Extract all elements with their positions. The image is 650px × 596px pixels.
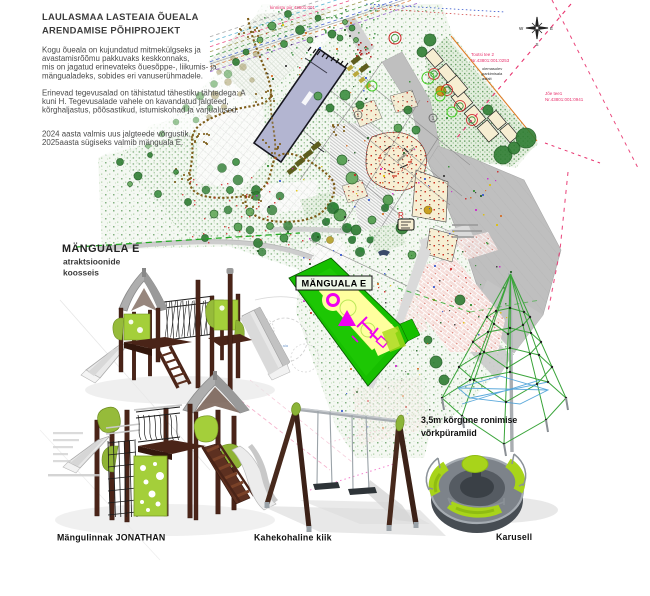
svg-text:MÄNGUALA E: MÄNGUALA E	[62, 242, 140, 255]
svg-text:kinnistu piir 43801:001: kinnistu piir 43801:001	[270, 5, 316, 10]
svg-text:E: E	[550, 26, 553, 31]
svg-text:Karusell: Karusell	[496, 532, 532, 542]
svg-text:3,5m kõrgune ronimise: 3,5m kõrgune ronimise	[421, 415, 517, 425]
svg-text:MÄNGUALA E: MÄNGUALA E	[302, 279, 367, 289]
svg-text:asfalt: asfalt	[482, 76, 492, 81]
svg-text:Nr.43801:001:0253: Nr.43801:001:0253	[471, 58, 510, 63]
svg-text:Nr.43801:001:0941: Nr.43801:001:0941	[545, 97, 584, 102]
svg-text:koosseis: koosseis	[63, 268, 99, 278]
svg-text:Mängulinnak JONATHAN: Mängulinnak JONATHAN	[57, 533, 165, 543]
svg-text:1: 1	[432, 116, 435, 122]
svg-text:Kahekohaline kiik: Kahekohaline kiik	[254, 533, 332, 543]
svg-text:mängualadeks, sobides eri vanu: mängualadeks, sobides eri vanuserühmadel…	[42, 71, 203, 80]
svg-text:ARENDAMISE PÕHIPROJEKT: ARENDAMISE PÕHIPROJEKT	[42, 25, 180, 36]
svg-text:S: S	[536, 42, 539, 47]
svg-text:2025aasta sügiseks valmib mäng: 2025aasta sügiseks valmib mänguala E.	[42, 138, 183, 147]
svg-text:atraktsioonide: atraktsioonide	[63, 257, 121, 267]
svg-text:Tootsi tee 2: Tootsi tee 2	[471, 52, 495, 57]
svg-text:Jõe tee1: Jõe tee1	[545, 91, 563, 96]
svg-text:LAULASMAA LASTEAIA ÕUEALA: LAULASMAA LASTEAIA ÕUEALA	[42, 11, 199, 22]
svg-text:R: R	[398, 211, 404, 220]
svg-text:võrkpüramiid: võrkpüramiid	[421, 428, 477, 438]
svg-text:1: 1	[357, 113, 360, 119]
svg-text:kõrghaljastus, põõsastikud, is: kõrghaljastus, põõsastikud, istumiskohad…	[42, 106, 239, 115]
